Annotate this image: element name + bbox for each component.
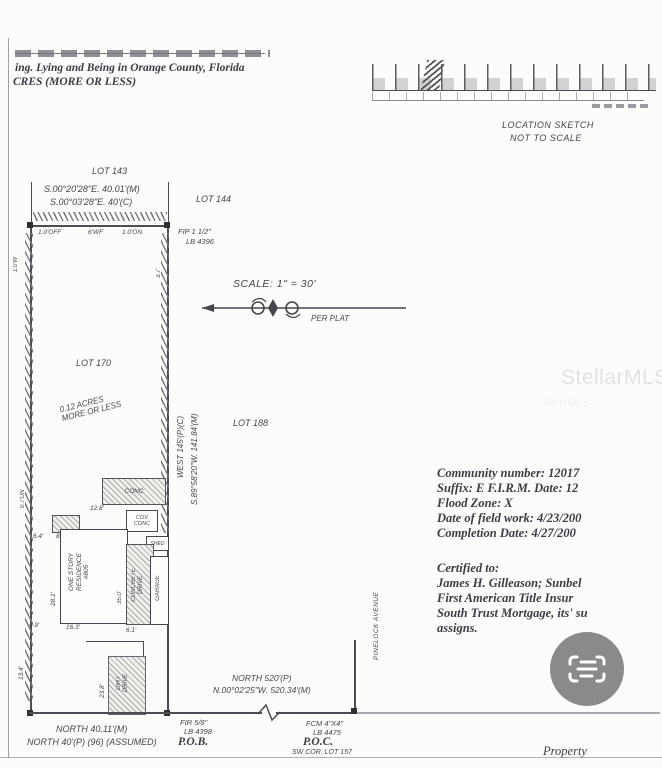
south-bearing-plat: NORTH 40'(P) (96) (ASSUMED) xyxy=(27,737,157,747)
conc-pad-label: CONC xyxy=(124,488,143,495)
dim-6-4: 6.4' xyxy=(33,533,43,540)
fir-monument-label: FIR 5/8" xyxy=(180,718,207,727)
concrete-drive-label: CONCRETE DRIVE xyxy=(131,554,145,616)
per-plat-label: PER PLAT xyxy=(311,314,349,323)
flood-line-1: Community number: 12017 xyxy=(437,466,662,481)
concrete-drive-label-2: DRIVE xyxy=(138,554,145,616)
north-arrow-icon xyxy=(200,296,410,320)
strikethrough-line xyxy=(15,53,265,54)
certified-line-2: James H. Gilleason; Sunbel xyxy=(437,576,662,591)
walk-line-vertical xyxy=(143,641,144,656)
header-line-2: CRES (MORE OR LESS) xyxy=(13,76,136,88)
dim-6-1: 6.1' xyxy=(126,627,136,634)
south-bearing-measured: NORTH 40.11'(M) xyxy=(56,724,127,734)
cov-conc-porch: COV CONC xyxy=(126,510,158,532)
corner-marker-ne xyxy=(164,222,170,228)
pob-label: P.O.B. xyxy=(178,736,208,748)
residence-label-2: RESIDENCE xyxy=(76,532,84,612)
dim-4-9: 4.9' xyxy=(29,622,39,629)
line-break-symbol xyxy=(258,703,280,723)
fence-note-wf: 6'WF xyxy=(88,229,103,236)
residence-label-3: #805 xyxy=(83,532,91,612)
dirt-drive-label-1: DIRT xyxy=(116,660,123,706)
lot-188-label: LOT 188 xyxy=(233,418,268,428)
certified-line-4: South Trust Mortgage, its' su xyxy=(437,606,662,621)
lot-170-label: LOT 170 xyxy=(76,358,111,368)
flood-line-2: Suffix: E F.I.R.M. Date: 12 xyxy=(437,481,662,496)
scale-label: SCALE: 1" = 30' xyxy=(233,278,316,290)
acreage-note: 0.12 ACRES MORE OR LESS xyxy=(59,391,122,423)
south-line-extension xyxy=(355,712,660,714)
location-sketch-strip-blocks xyxy=(372,78,656,91)
header-line-1: ing. Lying and Being in Orange County, F… xyxy=(15,62,245,74)
property-label: Property xyxy=(543,744,587,759)
survey-document-page: ing. Lying and Being in Orange County, F… xyxy=(0,0,662,768)
location-sketch-baseline xyxy=(372,100,644,101)
location-sketch-title-1: LOCATION SKETCH xyxy=(502,120,594,130)
street-bearing-plat: NORTH 520'(P) xyxy=(232,673,292,683)
residence-label: ONE STORY RESIDENCE #805 xyxy=(68,532,91,612)
cov-label-2: CONC xyxy=(134,521,150,527)
garage-label: GARAGE xyxy=(155,559,161,617)
residence-label-1: ONE STORY xyxy=(68,532,76,612)
poc-corner-label: SW COR. LOT 157 xyxy=(292,749,352,756)
north-fence-hatch xyxy=(33,212,167,221)
dim-35-0: 35.0' xyxy=(117,591,123,604)
certified-line-3: First American Title Insur xyxy=(437,591,662,606)
fence-note-off: 1.0'OFF xyxy=(38,229,61,236)
scan-glyph xyxy=(565,647,609,691)
dim-23-8: 23.8' xyxy=(99,684,106,698)
fence-note-west: 1.0'W xyxy=(13,257,19,272)
fcm-monument-label: FCM 4"X4" xyxy=(306,719,343,728)
stellar-mls-watermark: StellarMLS xyxy=(561,366,662,390)
fence-note-gap: 3.7' xyxy=(156,269,162,279)
north-bearing-calc: S.00°03'28"E. 40'(C) xyxy=(50,197,132,207)
location-sketch-smudge-text xyxy=(592,104,648,108)
dirt-drive-label-2: DRIVE xyxy=(123,660,130,706)
north-bearing-measured: S.00°20'28"E. 40.01'(M) xyxy=(44,184,140,194)
fip-monument-lb: LB 4396 xyxy=(186,237,214,246)
north-boundary-line xyxy=(30,225,169,227)
south-boundary-line xyxy=(29,712,355,714)
east-bearing-plat: WEST 145'(P)(C) xyxy=(176,416,185,478)
lot-144-label: LOT 144 xyxy=(196,194,231,204)
dim-extension-tick-left xyxy=(31,182,32,224)
east-bearing-measured: S.89°58'20"W. 141.84'(M) xyxy=(190,413,199,505)
dim-16-3: 16.3' xyxy=(66,624,80,631)
corner-marker-nw xyxy=(27,222,33,228)
fip-monument-label: FIP 1 1/2" xyxy=(178,227,211,236)
street-right-of-way-line xyxy=(354,640,356,712)
scan-edge-line-left xyxy=(8,38,9,758)
concrete-drive-label-1: CONCRETE xyxy=(131,554,138,616)
location-sketch-subticks xyxy=(372,92,644,100)
flood-line-5: Completion Date: 4/27/200 xyxy=(437,526,662,541)
west-fence-hatch xyxy=(25,233,33,701)
certified-line-5: assigns. xyxy=(437,621,662,636)
flood-info-block: Community number: 12017 Suffix: E F.I.R.… xyxy=(437,466,662,546)
fence-note-on2: 0.7'ON xyxy=(20,490,26,509)
lot-143-label: LOT 143 xyxy=(92,166,127,176)
dim-12-8: 12.8' xyxy=(90,505,104,512)
document-scan-icon[interactable] xyxy=(550,632,624,706)
dim-28-1: 28.1' xyxy=(50,592,57,606)
flood-line-3: Flood Zone: X xyxy=(437,496,662,511)
certified-line-1: Certified to: xyxy=(437,561,662,576)
dim-13-4: 13.4' xyxy=(18,666,25,680)
cov-conc-label: COV CONC xyxy=(134,515,150,527)
mfrmls-watermark: MFRMLS xyxy=(544,398,590,409)
location-sketch-title-2: NOT TO SCALE xyxy=(510,133,582,143)
flood-line-4: Date of field work: 4/23/200 xyxy=(437,511,662,526)
walk-line-horizontal xyxy=(86,641,144,642)
certified-block: Certified to: James H. Gilleason; Sunbel… xyxy=(437,561,662,641)
conc-pad: CONC xyxy=(102,478,166,505)
street-name-label: PINELOCK AVENUE xyxy=(373,592,380,660)
street-bearing-measured: N.00°02'25"W. 520.34'(M) xyxy=(213,685,311,695)
dim-extension-tick-right xyxy=(168,182,169,224)
corner-marker-poc xyxy=(351,708,357,714)
poc-label: P.O.C. xyxy=(303,736,333,748)
dirt-drive-label: DIRT DRIVE xyxy=(116,660,130,706)
fence-note-on: 1.0'ON xyxy=(122,229,142,236)
fir-monument-lb: LB 4398 xyxy=(184,727,212,736)
